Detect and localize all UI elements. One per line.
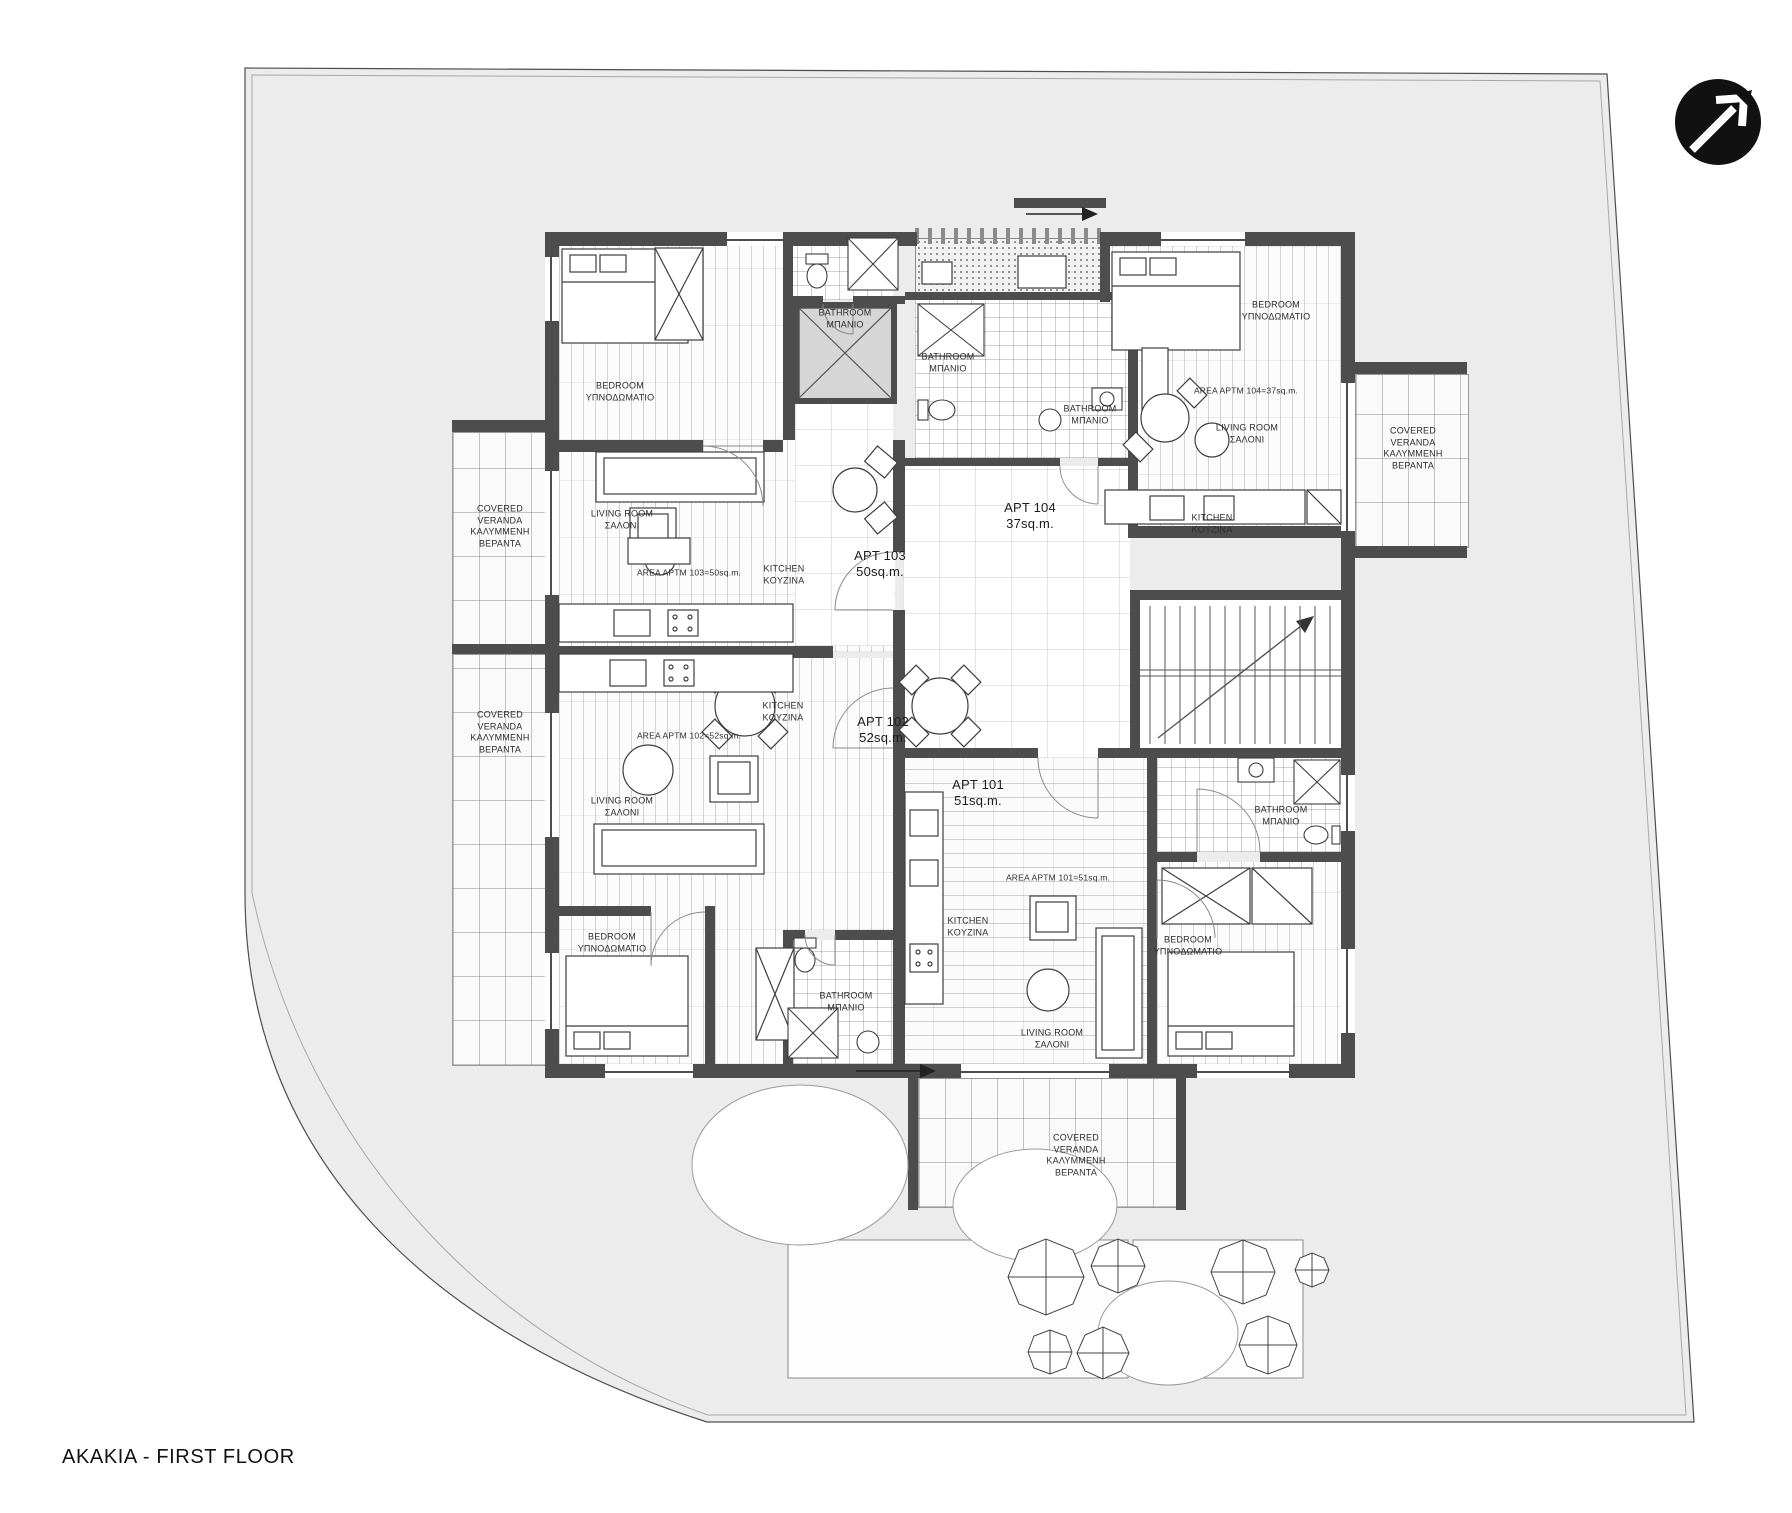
label-veranda-right: COVEREDVERANDAΚΑΛΥΜΜΕΝΗΒΕΡΑΝΤΑ [1383, 426, 1442, 473]
label-veranda-left-top: COVEREDVERANDAΚΑΛΥΜΜΕΝΗΒΕΡΑΝΤΑ [470, 504, 529, 551]
label-living-apt102: LIVING ROOMΣΑΛΟΝΙ [591, 795, 653, 818]
label-living-apt104: LIVING ROOMΣΑΛΟΝΙ [1216, 422, 1278, 445]
label-bathroom-apt104-b: BATHROOMΜΠΑΝΙΟ [1064, 403, 1117, 426]
label-kitchen-apt103: KITCHENKOYZINA [764, 563, 805, 586]
label-apt-101: APT 10151sq.m. [952, 777, 1004, 810]
label-bedroom-apt101: BEDROOMΥΠΝΟΔΩΜΑΤΙΟ [1154, 934, 1223, 957]
page-title: AKAKIA - FIRST FLOOR [62, 1446, 295, 1469]
label-bedroom-apt102: BEDROOMΥΠΝΟΔΩΜΑΤΙΟ [578, 931, 647, 954]
label-area-apt103: AREA APTM 103=50sq.m. [637, 567, 741, 578]
label-living-apt103: LIVING ROOMΣΑΛΟΝΙ [591, 508, 653, 531]
floorplan-canvas: BEDROOMΥΠΝΟΔΩΜΑΤΙΟ BATHROOMΜΠΑΝΙΟ LIVING… [0, 0, 1792, 1513]
label-apt-103: APT 10350sq.m. [854, 548, 906, 581]
label-bedroom-apt103: BEDROOMΥΠΝΟΔΩΜΑΤΙΟ [586, 380, 655, 403]
label-apt-104: APT 10437sq.m. [1004, 500, 1056, 533]
label-kitchen-apt104: KITCHENKOYZINA [1192, 512, 1233, 535]
north-arrow-logo-icon [1675, 79, 1761, 165]
logo [0, 0, 1792, 1513]
label-bathroom-apt102: BATHROOMΜΠΑΝΙΟ [820, 990, 873, 1013]
label-kitchen-apt102: KITCHENKOYZINA [763, 700, 804, 723]
label-area-apt101: AREA APTM 101=51sq.m. [1006, 872, 1110, 883]
label-veranda-bottom: COVEREDVERANDAΚΑΛΥΜΜΕΝΗΒΕΡΑΝΤΑ [1046, 1133, 1105, 1180]
label-area-apt102: AREA APTM 102=52sq.m. [637, 730, 741, 741]
label-bathroom-apt101: BATHROOMΜΠΑΝΙΟ [1255, 804, 1308, 827]
label-living-apt101: LIVING ROOMΣΑΛΟΝΙ [1021, 1027, 1083, 1050]
label-bathroom-apt104-a: BATHROOMΜΠΑΝΙΟ [922, 351, 975, 374]
label-veranda-left-bottom: COVEREDVERANDAΚΑΛΥΜΜΕΝΗΒΕΡΑΝΤΑ [470, 710, 529, 757]
label-apt-102: APT 10252sq.m. [857, 714, 909, 747]
label-bedroom-apt104: BEDROOMΥΠΝΟΔΩΜΑΤΙΟ [1242, 299, 1311, 322]
label-bathroom-apt103: BATHROOMΜΠΑΝΙΟ [819, 307, 872, 330]
label-area-apt104: AREA APTM 104=37sq.m. [1194, 385, 1298, 396]
label-kitchen-apt101: KITCHENKOYZINA [948, 915, 989, 938]
